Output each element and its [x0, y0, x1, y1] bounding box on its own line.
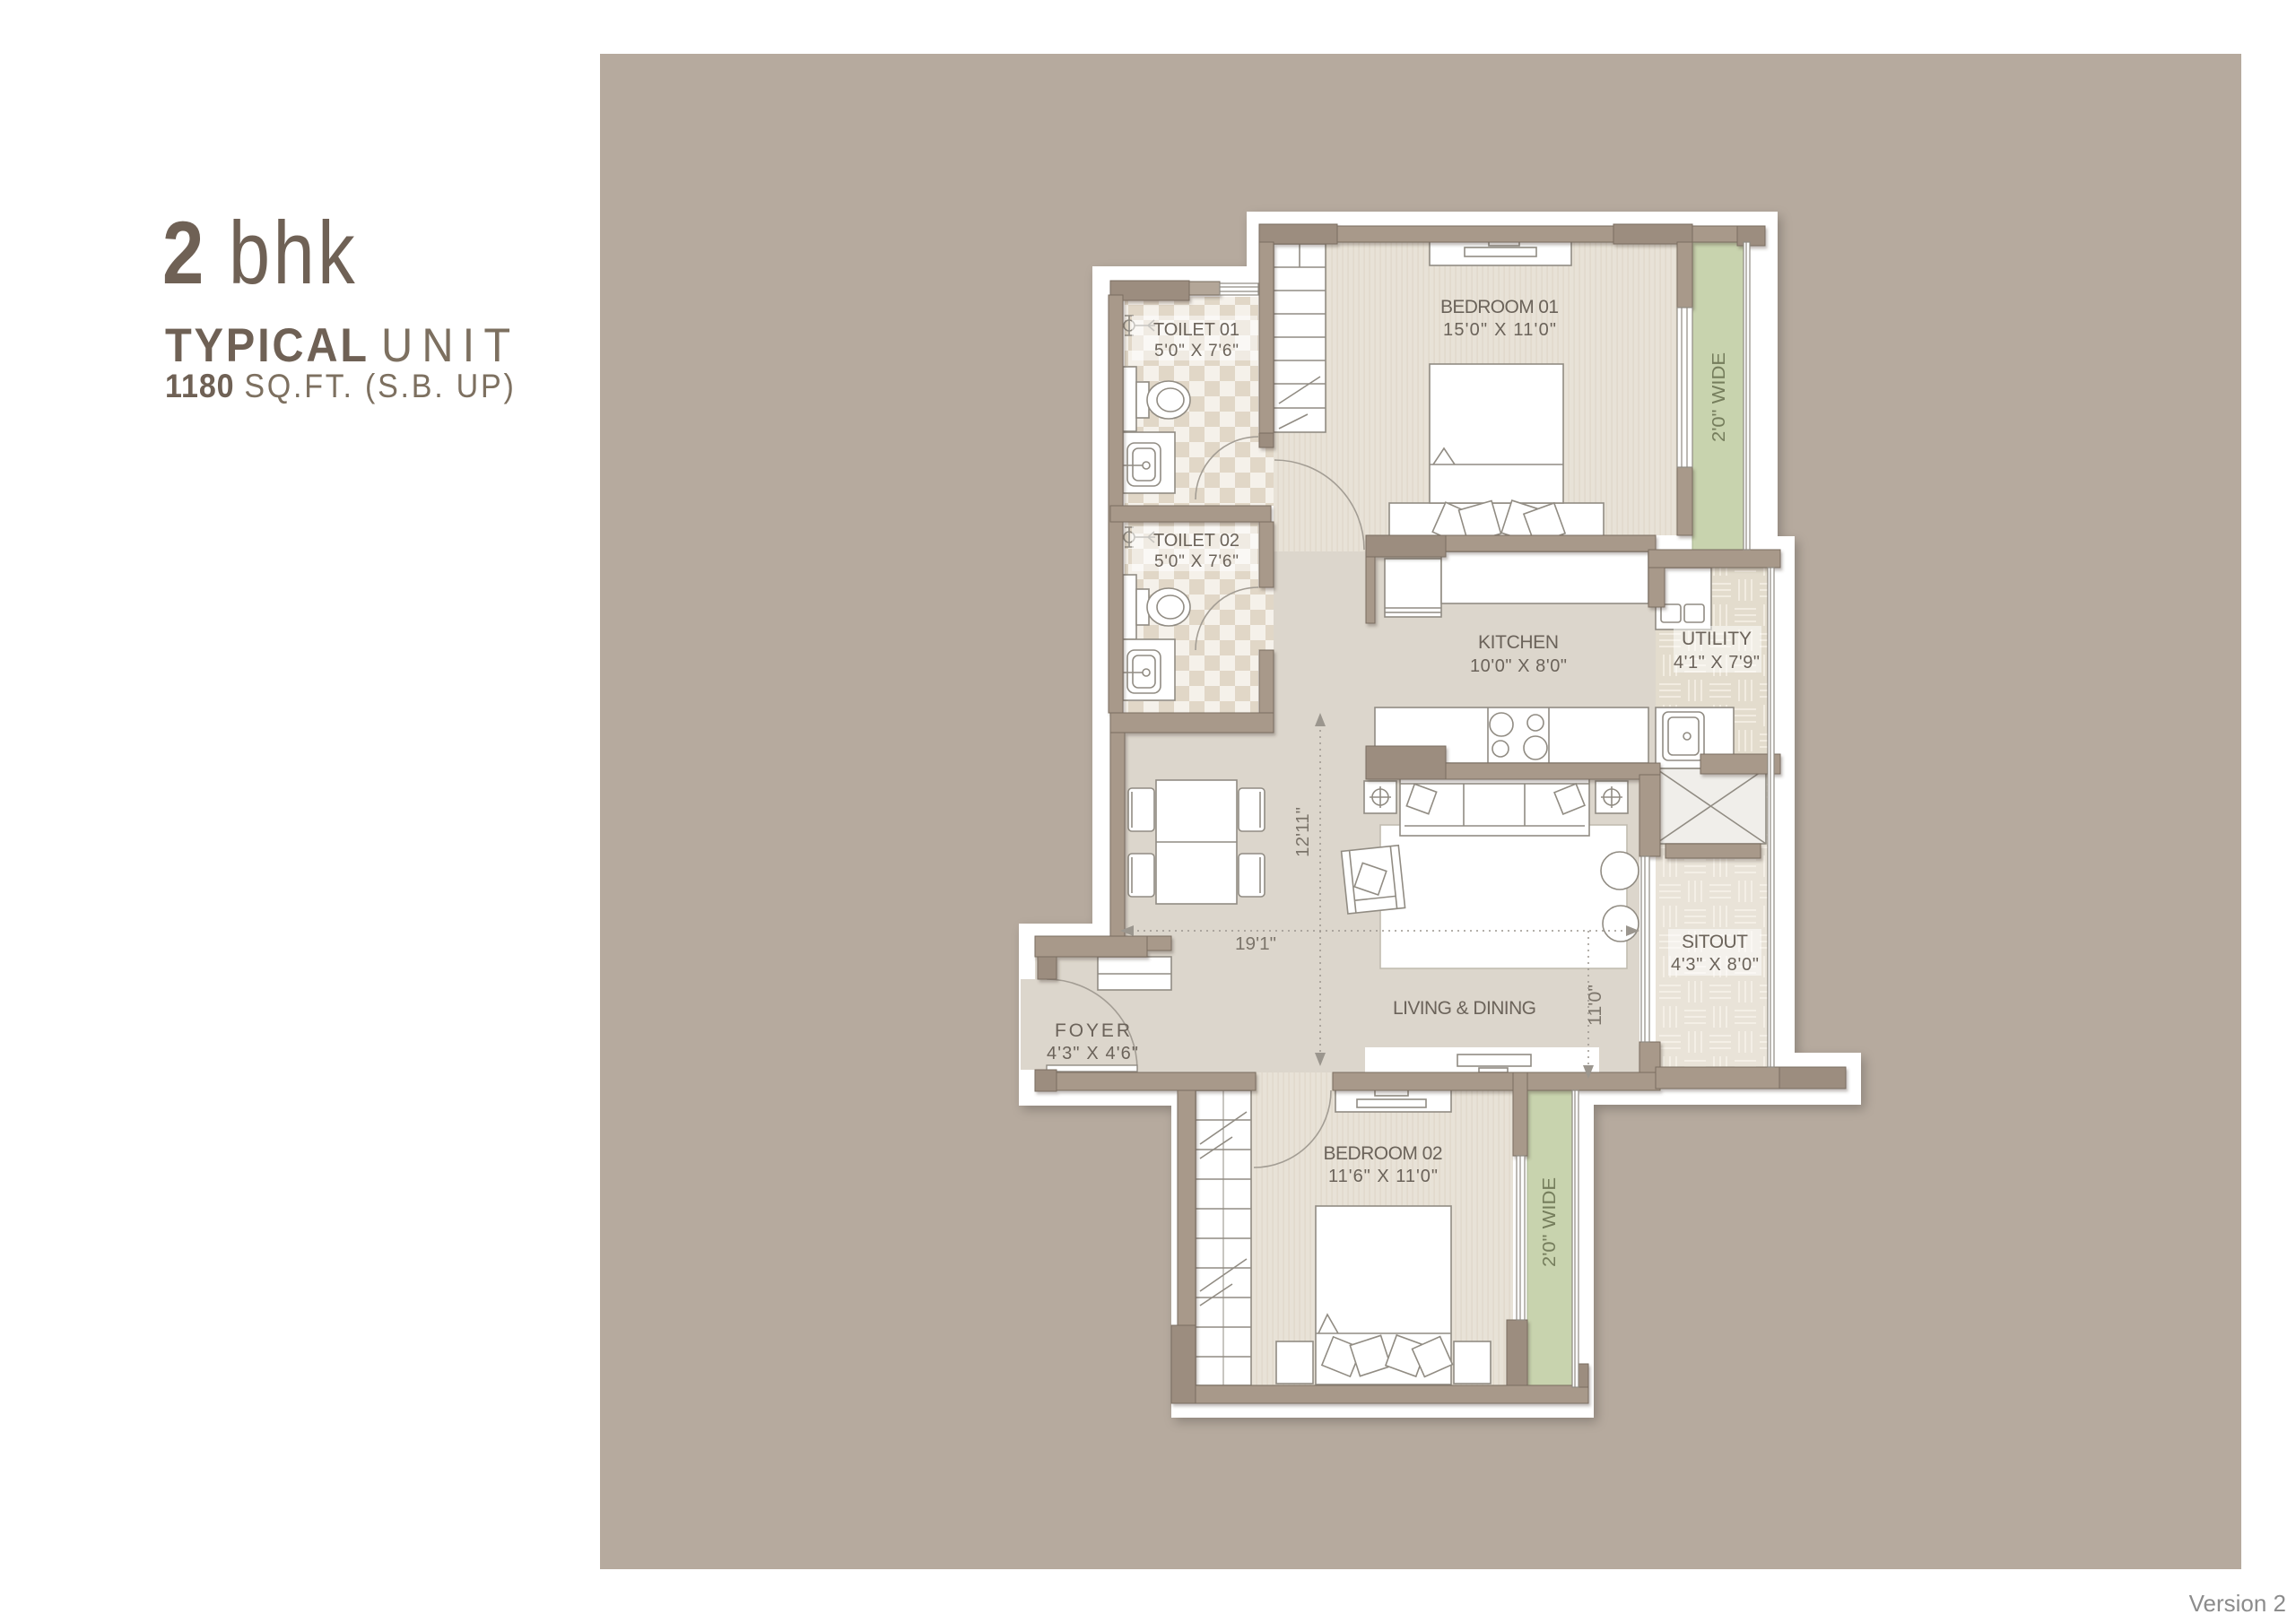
svg-text:5'0" X 7'6": 5'0" X 7'6" — [1154, 342, 1239, 360]
svg-text:TOILET 02: TOILET 02 — [1153, 531, 1239, 551]
svg-text:11'0": 11'0" — [1586, 985, 1605, 1026]
svg-text:4'3" X 8'0": 4'3" X 8'0" — [1671, 955, 1759, 975]
svg-text:2'0" WIDE: 2'0" WIDE — [1540, 1177, 1560, 1267]
svg-text:5'0" X 7'6": 5'0" X 7'6" — [1154, 552, 1239, 571]
svg-text:TOILET 01: TOILET 01 — [1153, 320, 1239, 340]
svg-text:bhk: bhk — [229, 204, 358, 302]
svg-text:11'6" X 11'0": 11'6" X 11'0" — [1328, 1167, 1438, 1186]
svg-text:15'0" X 11'0": 15'0" X 11'0" — [1443, 320, 1556, 340]
svg-text:UTILITY: UTILITY — [1682, 629, 1752, 649]
svg-text:UNIT: UNIT — [381, 318, 519, 371]
svg-text:Version 2: Version 2 — [2189, 1590, 2286, 1617]
svg-text:SQ.FT. (S.B. UP): SQ.FT. (S.B. UP) — [244, 368, 516, 405]
svg-text:FOYER: FOYER — [1055, 1020, 1130, 1041]
svg-text:12'11": 12'11" — [1293, 807, 1313, 857]
svg-text:19'1": 19'1" — [1235, 934, 1276, 954]
svg-text:KITCHEN: KITCHEN — [1478, 632, 1559, 653]
svg-text:10'0" X 8'0": 10'0" X 8'0" — [1470, 656, 1567, 676]
svg-text:2'0" WIDE: 2'0" WIDE — [1709, 352, 1729, 442]
svg-text:SITOUT: SITOUT — [1682, 932, 1748, 952]
svg-text:BEDROOM 01: BEDROOM 01 — [1440, 297, 1559, 317]
svg-text:TYPICAL: TYPICAL — [165, 318, 370, 371]
svg-text:2: 2 — [162, 204, 204, 302]
svg-text:BEDROOM 02: BEDROOM 02 — [1324, 1143, 1443, 1164]
svg-text:LIVING & DINING: LIVING & DINING — [1393, 998, 1536, 1019]
svg-text:4'3" X 4'6": 4'3" X 4'6" — [1047, 1044, 1138, 1063]
svg-text:1180: 1180 — [165, 368, 235, 405]
svg-text:4'1" X 7'9": 4'1" X 7'9" — [1674, 653, 1760, 673]
